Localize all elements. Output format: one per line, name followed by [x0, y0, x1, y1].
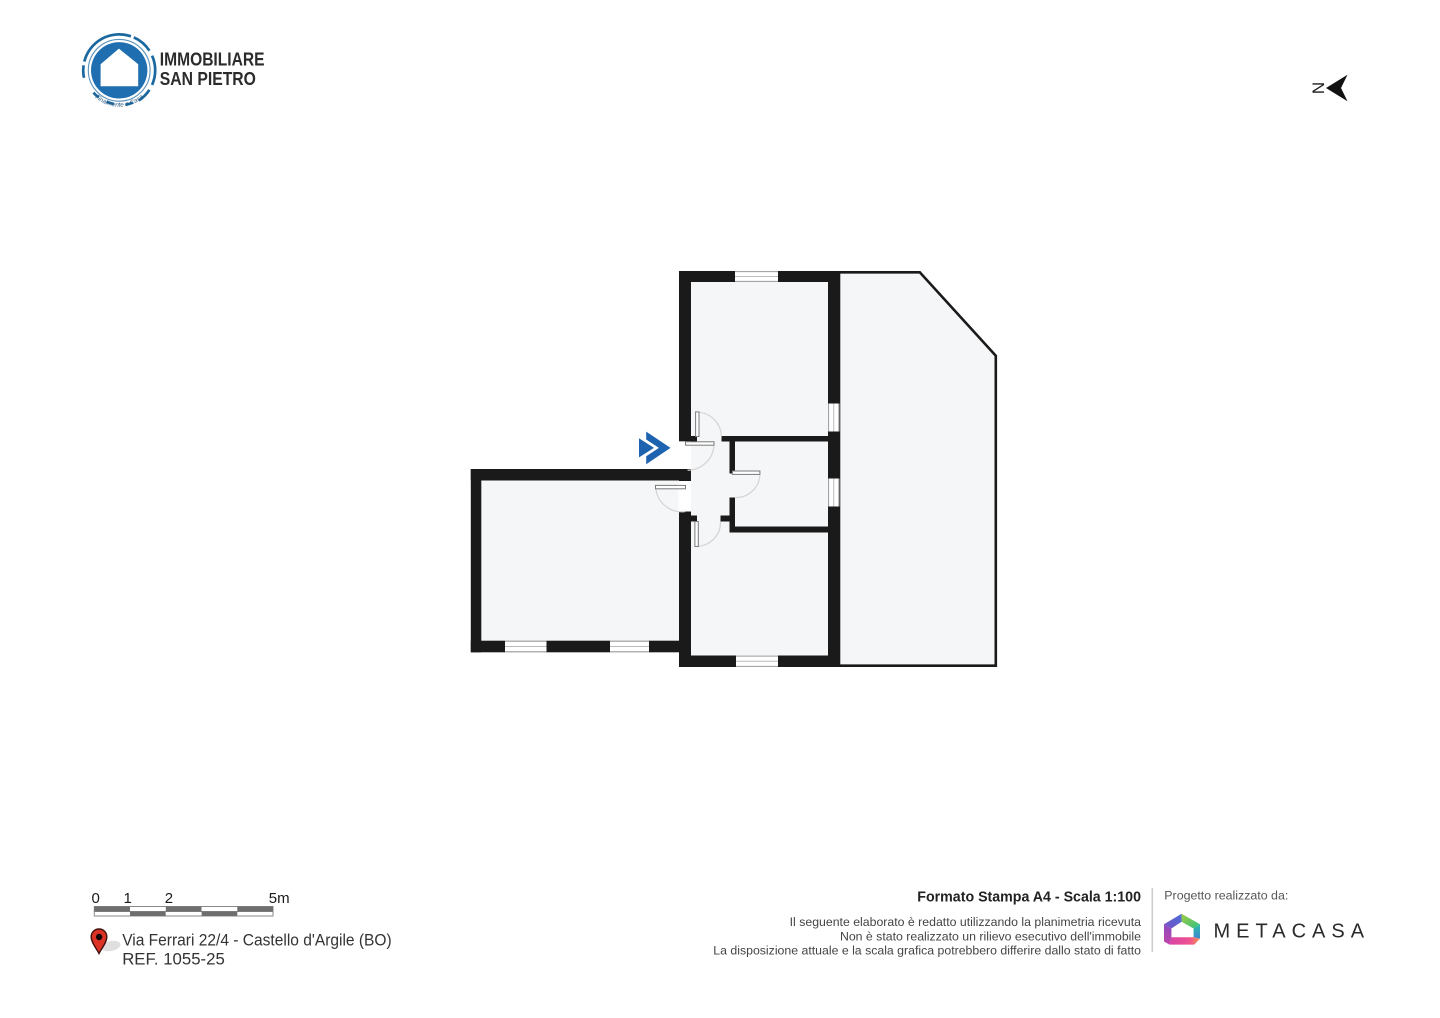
svg-text:La disposizione attuale e la s: La disposizione attuale e la scala grafi…	[713, 944, 1141, 958]
svg-text:Il seguente elaborato è redatt: Il seguente elaborato è redatto utilizza…	[790, 915, 1142, 929]
svg-text:SAN PIETRO: SAN PIETRO	[160, 68, 256, 89]
svg-text:0: 0	[92, 890, 100, 907]
svg-text:METACASA: METACASA	[1214, 921, 1371, 943]
svg-text:N: N	[1309, 82, 1328, 94]
svg-text:Progetto realizzato da:: Progetto realizzato da:	[1164, 888, 1288, 902]
svg-text:Non è stato realizzato un rili: Non è stato realizzato un rilievo esecut…	[840, 929, 1141, 943]
svg-text:Formato Stampa A4 - Scala 1:10: Formato Stampa A4 - Scala 1:100	[917, 889, 1141, 905]
svg-text:2: 2	[165, 890, 173, 907]
svg-text:1: 1	[124, 890, 132, 907]
svg-text:Via Ferrari 22/4 - Castello d': Via Ferrari 22/4 - Castello d'Argile (BO…	[122, 931, 392, 949]
svg-text:IMMOBILIARE: IMMOBILIARE	[160, 49, 265, 70]
svg-text:5m: 5m	[269, 890, 290, 907]
svg-text:REF. 1055-25: REF. 1055-25	[122, 950, 225, 969]
